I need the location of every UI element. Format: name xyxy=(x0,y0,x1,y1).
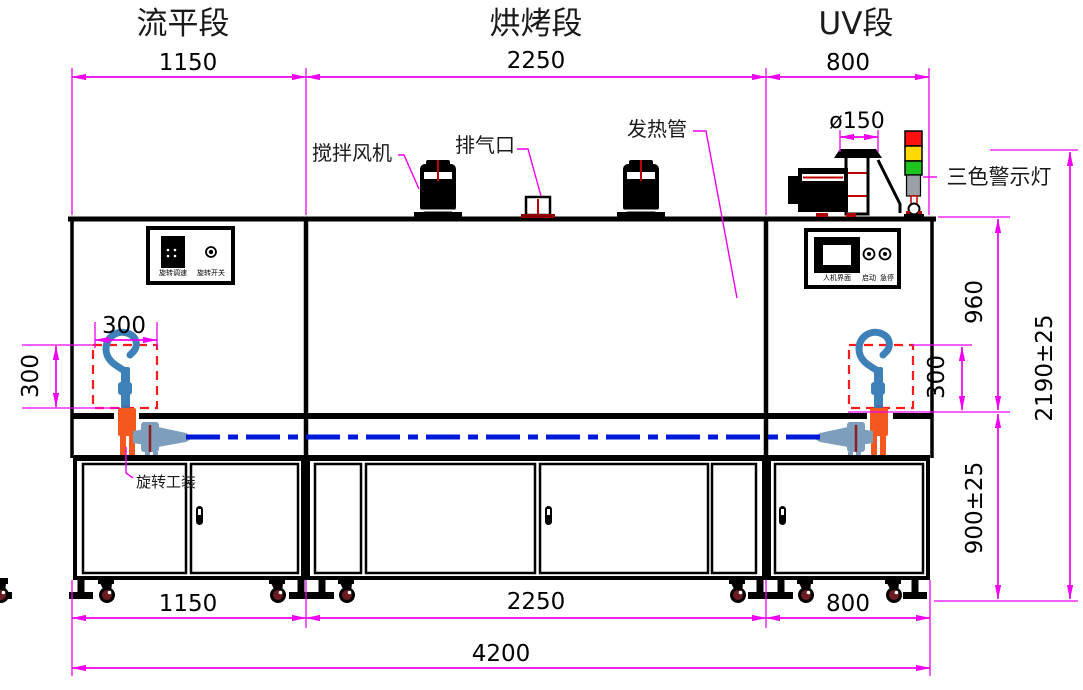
uv-blower xyxy=(788,149,900,217)
light-yellow-segment xyxy=(905,146,922,161)
dim-text-top-2250: 2250 xyxy=(507,48,566,74)
light-green-segment xyxy=(905,161,922,175)
dim-text-top-800: 800 xyxy=(826,50,870,76)
start-label: 启动 xyxy=(862,273,876,282)
dim-text-bottom-800: 800 xyxy=(826,591,870,617)
uv-control-panel: 人机界面 启动 急停 xyxy=(806,230,899,287)
blower-support xyxy=(878,160,900,213)
dim-text-bottom-2250: 2250 xyxy=(507,589,566,615)
dim-text-bottom-1150: 1150 xyxy=(159,591,218,617)
cabinet-door[interactable] xyxy=(540,464,708,573)
stir-fan-leader xyxy=(398,155,419,189)
section-title-uv: UV段 xyxy=(819,6,894,42)
exhaust-port xyxy=(521,197,555,218)
dim-text-chamber-960: 960 xyxy=(962,280,988,324)
light-red-segment xyxy=(905,131,922,146)
feet-and-casters xyxy=(0,578,927,603)
stir-fan-label: 搅拌风机 xyxy=(312,141,392,165)
oven-line-drawing: 旋转调速 旋转开关 人机界面 启动 急停 xyxy=(0,0,1083,690)
dim-text-total-2190: 2190±25 xyxy=(1032,314,1058,421)
base-cabinets xyxy=(74,458,930,578)
speed-knob-label: 旋转调速 xyxy=(159,268,187,277)
section-title-baking: 烘烤段 xyxy=(490,6,583,42)
door-handle[interactable] xyxy=(779,506,786,525)
duct-flange xyxy=(834,149,882,158)
stir-fan-motor-1 xyxy=(414,160,462,219)
rotate-switch-label: 旋转开关 xyxy=(197,268,225,277)
leveling-control-panel: 旋转调速 旋转开关 xyxy=(148,228,233,283)
speed-display[interactable] xyxy=(161,236,185,268)
exhaust-label: 排气口 xyxy=(455,133,515,157)
light-base-segment xyxy=(907,175,921,196)
dim-text-base-900: 900±25 xyxy=(962,462,988,554)
cabinet-panel xyxy=(315,464,361,573)
door-handle[interactable] xyxy=(545,506,552,525)
estop-label: 急停 xyxy=(880,273,894,282)
rotary-fixture-label: 旋转工装 xyxy=(136,473,196,491)
hmi-screen[interactable] xyxy=(823,245,851,265)
dim-text-top-1150: 1150 xyxy=(159,50,218,76)
dim-text-fixture-width: 300 xyxy=(102,313,146,339)
door-handle[interactable] xyxy=(196,506,203,525)
conveyor-coupling-right xyxy=(813,422,873,459)
cabinet-door[interactable] xyxy=(191,464,298,573)
heating-tube-label: 发热管 xyxy=(627,117,687,141)
dim-text-fixture-height-right: 300 xyxy=(924,355,950,399)
engineering-drawing-canvas: 旋转调速 旋转开关 人机界面 启动 急停 xyxy=(0,0,1083,690)
tower-light-label: 三色警示灯 xyxy=(947,165,1052,189)
heater-leader xyxy=(693,131,737,298)
caster-wheel xyxy=(0,578,9,603)
section-titles: 流平段 烘烤段 UV段 xyxy=(137,6,894,42)
stir-fan-motor-2 xyxy=(617,160,665,219)
cabinet-door[interactable] xyxy=(366,464,535,573)
tri-color-tower-light xyxy=(904,131,924,218)
light-pole-ball xyxy=(909,204,920,215)
hmi-label: 人机界面 xyxy=(823,273,851,282)
section-title-leveling: 流平段 xyxy=(137,6,230,42)
conveyor-coupling-left xyxy=(133,422,193,459)
dim-text-duct-150: ø150 xyxy=(829,109,884,134)
dim-text-fixture-height-left: 300 xyxy=(18,354,44,398)
fixture-zones xyxy=(93,345,913,408)
dim-text-total-4200: 4200 xyxy=(472,641,531,667)
cabinet-panel xyxy=(712,464,756,573)
exhaust-leader xyxy=(517,149,541,196)
cabinet-door[interactable] xyxy=(775,464,923,573)
